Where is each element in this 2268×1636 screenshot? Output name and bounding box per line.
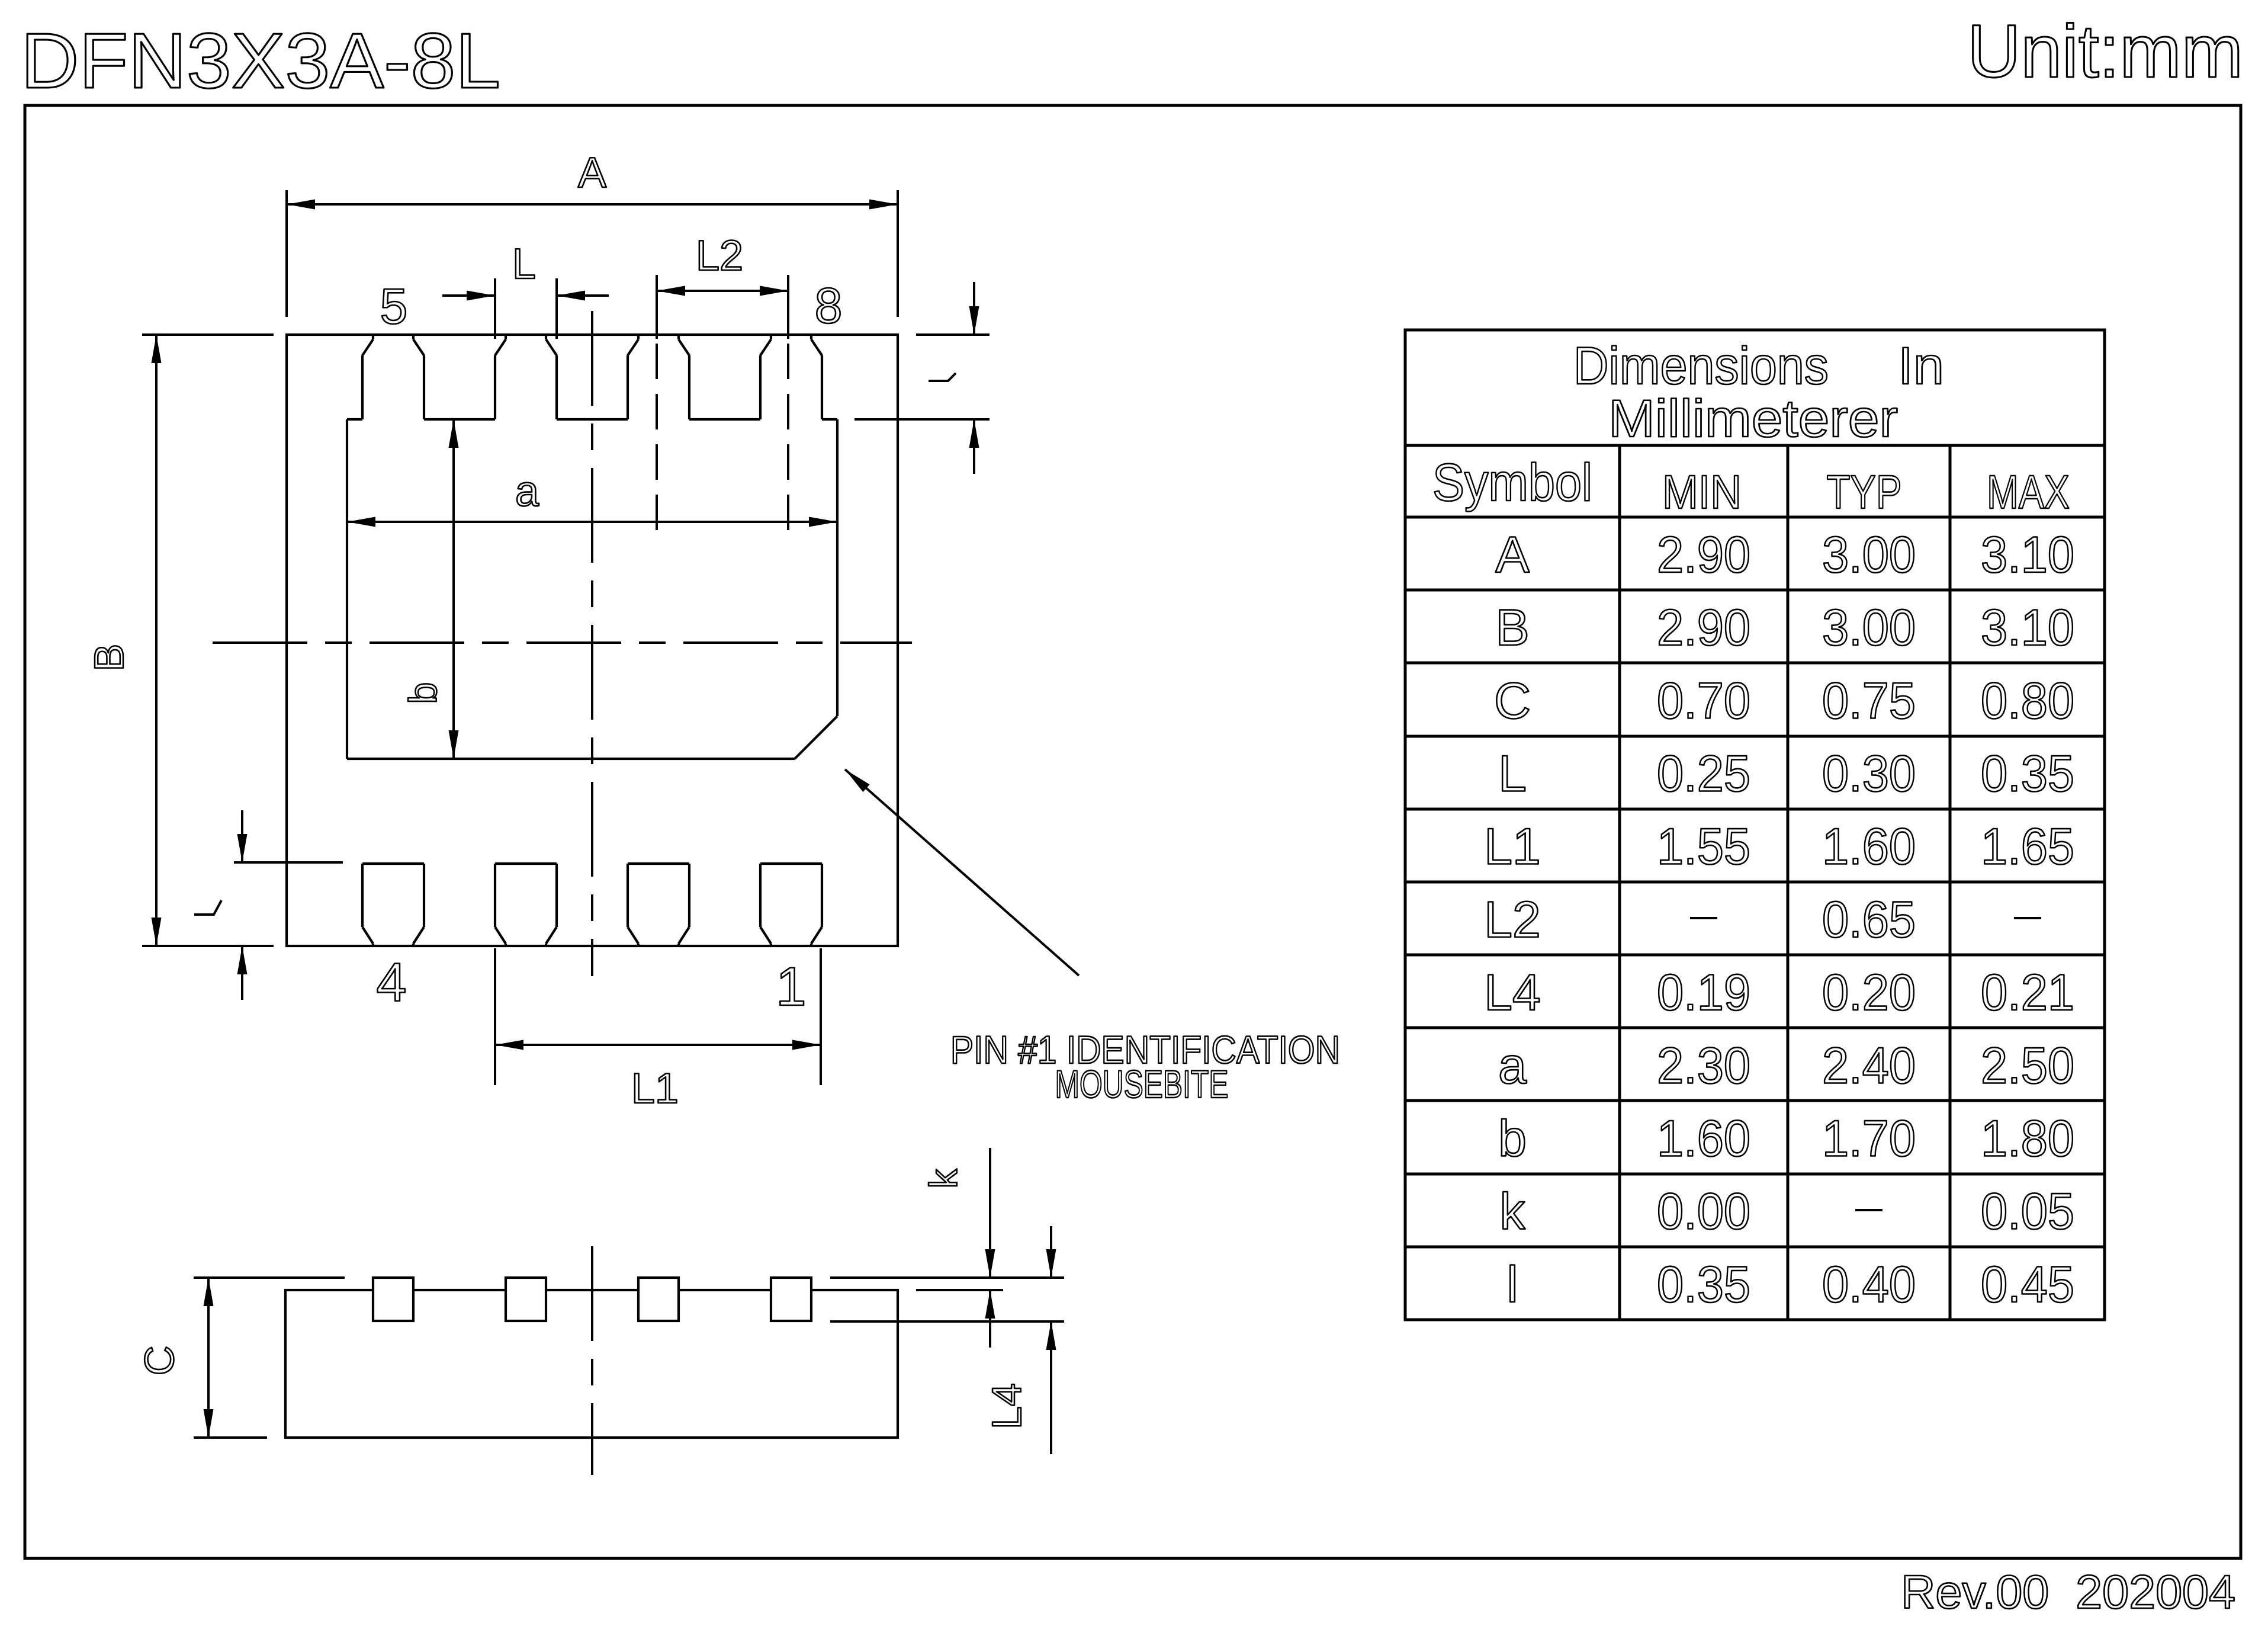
svg-text:2.50: 2.50 <box>1981 1037 2074 1094</box>
svg-text:0.20: 0.20 <box>1822 964 1916 1021</box>
svg-text:0.05: 0.05 <box>1981 1183 2074 1240</box>
svg-text:2.90: 2.90 <box>1657 527 1750 583</box>
svg-text:Unit:mm: Unit:mm <box>1967 9 2243 93</box>
svg-text:b: b <box>1498 1110 1527 1167</box>
svg-text:Symbol: Symbol <box>1432 453 1592 512</box>
svg-text:L: L <box>1498 746 1527 803</box>
svg-text:1.55: 1.55 <box>1657 819 1750 875</box>
svg-text:L: L <box>512 240 536 288</box>
svg-text:1.65: 1.65 <box>1981 819 2074 875</box>
svg-text:1.60: 1.60 <box>1657 1110 1750 1167</box>
svg-text:In: In <box>1898 336 1944 395</box>
svg-text:0.30: 0.30 <box>1822 746 1916 803</box>
svg-text:3.10: 3.10 <box>1981 599 2074 656</box>
svg-text:Dimensions: Dimensions <box>1573 336 1829 395</box>
svg-text:0.65: 0.65 <box>1822 891 1916 948</box>
svg-text:0.00: 0.00 <box>1657 1183 1750 1240</box>
svg-text:0.35: 0.35 <box>1981 746 2074 803</box>
svg-text:0.35: 0.35 <box>1657 1256 1750 1313</box>
svg-text:4: 4 <box>376 952 406 1013</box>
svg-text:b: b <box>401 682 445 704</box>
svg-text:1: 1 <box>776 957 806 1017</box>
svg-text:A: A <box>1495 527 1530 583</box>
svg-text:1.60: 1.60 <box>1822 819 1916 875</box>
svg-text:0.75: 0.75 <box>1822 672 1916 729</box>
svg-text:0.19: 0.19 <box>1657 964 1750 1021</box>
svg-text:2.40: 2.40 <box>1822 1037 1916 1094</box>
svg-text:TYP: TYP <box>1827 466 1902 518</box>
svg-text:a: a <box>515 468 539 515</box>
svg-text:MAX: MAX <box>1987 466 2070 518</box>
svg-text:L2: L2 <box>1484 891 1541 948</box>
svg-text:5: 5 <box>380 278 408 334</box>
svg-text:2.90: 2.90 <box>1657 599 1750 656</box>
svg-text:3.00: 3.00 <box>1822 599 1916 656</box>
svg-text:8: 8 <box>815 278 843 333</box>
svg-text:L1: L1 <box>1484 819 1541 875</box>
svg-text:l: l <box>1506 1256 1518 1313</box>
svg-text:k: k <box>1500 1183 1526 1240</box>
svg-text:B: B <box>86 644 132 672</box>
svg-text:A: A <box>578 149 606 197</box>
svg-text:a: a <box>1498 1037 1527 1094</box>
svg-text:C: C <box>1494 672 1531 729</box>
svg-text:3.00: 3.00 <box>1822 527 1916 583</box>
svg-text:k: k <box>921 1169 965 1189</box>
svg-text:1.70: 1.70 <box>1822 1110 1916 1167</box>
svg-text:0.40: 0.40 <box>1822 1256 1916 1313</box>
svg-text:DFN3X3A-8L: DFN3X3A-8L <box>21 17 500 104</box>
svg-text:B: B <box>1495 599 1529 656</box>
svg-text:C: C <box>136 1346 182 1376</box>
svg-text:Rev.00 202004: Rev.00 202004 <box>1901 1566 2235 1618</box>
svg-text:0.80: 0.80 <box>1981 672 2074 729</box>
svg-text:L4: L4 <box>1484 964 1541 1021</box>
svg-text:0.25: 0.25 <box>1657 746 1750 803</box>
svg-text:1.80: 1.80 <box>1981 1110 2074 1167</box>
svg-text:Millimeterer: Millimeterer <box>1608 389 1898 448</box>
svg-text:L4: L4 <box>984 1383 1030 1429</box>
svg-text:3.10: 3.10 <box>1981 527 2074 583</box>
svg-text:2.30: 2.30 <box>1657 1037 1750 1094</box>
svg-text:0.45: 0.45 <box>1981 1256 2074 1313</box>
svg-text:MOUSEBITE: MOUSEBITE <box>1055 1062 1229 1106</box>
svg-text:L1: L1 <box>631 1065 679 1112</box>
svg-text:MIN: MIN <box>1662 466 1742 518</box>
svg-text:0.21: 0.21 <box>1981 964 2074 1021</box>
svg-text:L2: L2 <box>696 232 743 280</box>
svg-text:0.70: 0.70 <box>1657 672 1750 729</box>
